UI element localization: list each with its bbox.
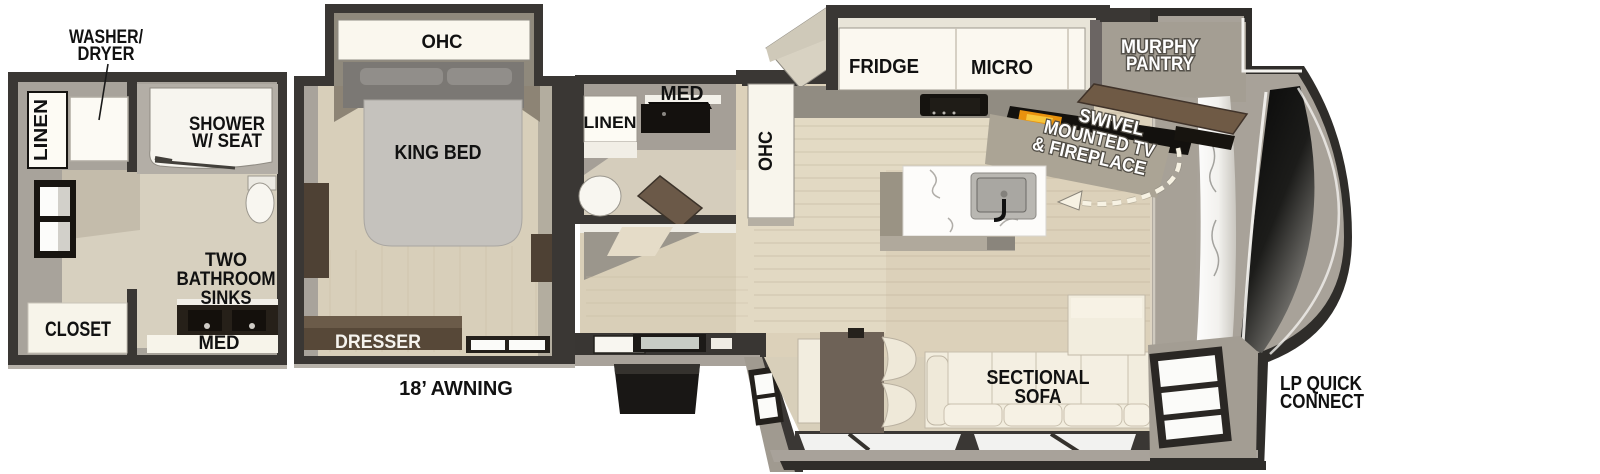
svg-text:DRESSER: DRESSER: [335, 332, 421, 353]
svg-text:OHC: OHC: [422, 32, 463, 53]
svg-text:FRIDGE: FRIDGE: [849, 56, 919, 78]
svg-text:OHC: OHC: [756, 131, 777, 171]
svg-text:LINEN: LINEN: [31, 99, 51, 161]
svg-text:CLOSET: CLOSET: [45, 318, 111, 341]
svg-text:MED: MED: [199, 333, 240, 354]
svg-text:CONNECT: CONNECT: [1280, 391, 1364, 413]
svg-text:TWO: TWO: [205, 250, 247, 271]
svg-text:MICRO: MICRO: [971, 57, 1033, 79]
svg-text:LINEN: LINEN: [584, 113, 637, 132]
svg-text:SOFA: SOFA: [1015, 386, 1062, 408]
svg-text:18’ AWNING: 18’ AWNING: [399, 378, 513, 400]
svg-text:MED: MED: [661, 83, 704, 105]
svg-text:BATHROOM: BATHROOM: [177, 269, 276, 290]
svg-text:KING BED: KING BED: [395, 142, 482, 164]
svg-text:SINKS: SINKS: [201, 288, 252, 309]
svg-text:PANTRY: PANTRY: [1126, 54, 1194, 75]
svg-text:W/ SEAT: W/ SEAT: [192, 131, 262, 152]
svg-text:DRYER: DRYER: [78, 44, 135, 65]
